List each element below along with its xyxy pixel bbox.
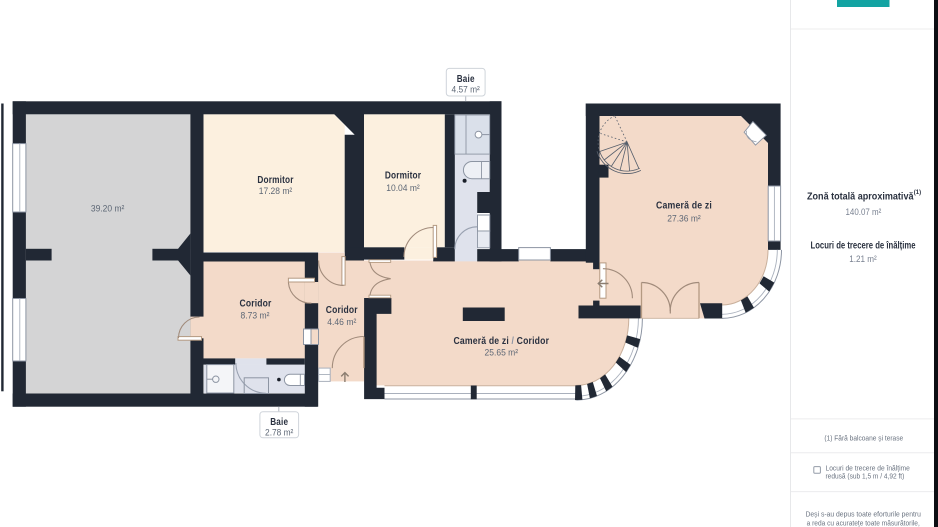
svg-text:4.46 m²: 4.46 m² <box>327 317 356 327</box>
svg-text:Baie: Baie <box>457 74 475 85</box>
svg-text:Deși s-au depus toate eforturi: Deși s-au depus toate eforturile pentru <box>806 510 921 519</box>
svg-text:Locuri de trecere de înălțime: Locuri de trecere de înălțime <box>826 465 910 472</box>
svg-text:39.20 m²: 39.20 m² <box>91 204 125 214</box>
svg-text:Coridor: Coridor <box>326 305 358 316</box>
svg-text:1.21 m²: 1.21 m² <box>849 254 877 265</box>
svg-text:4.57 m²: 4.57 m² <box>452 84 480 94</box>
svg-text:25.65 m²: 25.65 m² <box>485 347 519 357</box>
svg-text:8.73 m²: 8.73 m² <box>241 310 270 320</box>
svg-text:Coridor: Coridor <box>240 298 272 309</box>
svg-text:Locuri de trecere de înălțime: Locuri de trecere de înălțime <box>811 240 916 251</box>
svg-text:Baie: Baie <box>270 417 288 428</box>
svg-text:(1) Fără balcoane și terase: (1) Fără balcoane și terase <box>824 436 903 443</box>
svg-text:redusă (sub 1,5 m / 4,92 ft): redusă (sub 1,5 m / 4,92 ft) <box>826 473 905 480</box>
svg-text:Dormitor: Dormitor <box>385 171 421 182</box>
svg-text:27.36 m²: 27.36 m² <box>667 213 701 223</box>
svg-text:Zonă totală aproximativă: Zonă totală aproximativă <box>807 192 914 203</box>
svg-text:Cameră de zi / Coridor: Cameră de zi / Coridor <box>453 336 549 347</box>
svg-text:Dormitor: Dormitor <box>257 175 293 186</box>
svg-text:(1): (1) <box>914 190 921 196</box>
svg-text:Cameră de zi: Cameră de zi <box>656 201 712 212</box>
svg-text:140.07 m²: 140.07 m² <box>846 207 882 218</box>
svg-text:2.78 m²: 2.78 m² <box>265 427 293 437</box>
svg-text:10.04 m²: 10.04 m² <box>386 183 420 193</box>
svg-text:17.28 m²: 17.28 m² <box>259 186 293 196</box>
svg-text:a reda cu acuratețe toate măsu: a reda cu acuratețe toate măsurătorile, <box>807 518 920 527</box>
